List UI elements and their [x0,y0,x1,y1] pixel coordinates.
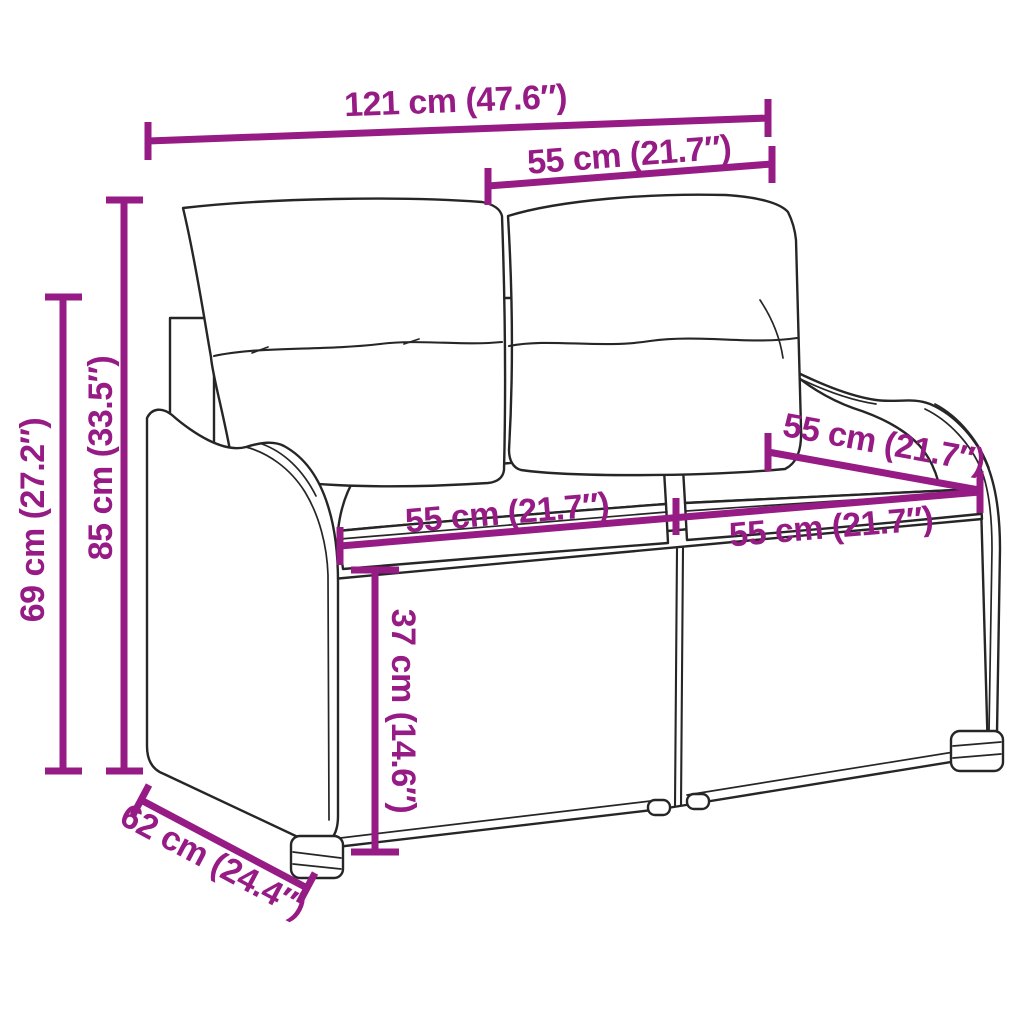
dim-armrest-height-label: 69 cm (27.2″) [14,418,52,622]
foot-right [951,731,1003,771]
dim-seat-height-label: 37 cm (14.6″) [384,609,422,813]
back-cushion-left [183,199,505,487]
dim-overall-width-label: 121 cm (47.6″) [343,78,567,125]
foot-middle-right [687,794,709,809]
product-dimension-diagram: 121 cm (47.6″) 55 cm (21.7″) 85 cm (33.5… [0,0,1024,1024]
dim-back-height-label: 85 cm (33.5″) [82,356,120,560]
dimension-back-width-top: 55 cm (21.7″) [488,128,772,205]
dimension-armrest-height: 69 cm (27.2″) [14,297,82,771]
foot-middle-left [648,800,670,815]
diagram-canvas: 121 cm (47.6″) 55 cm (21.7″) 85 cm (33.5… [0,0,1024,1024]
dimension-back-height: 85 cm (33.5″) [82,200,143,771]
dim-back-width-top-label: 55 cm (21.7″) [526,128,733,182]
back-cushion-right [508,195,801,475]
armrest-left [147,410,338,846]
